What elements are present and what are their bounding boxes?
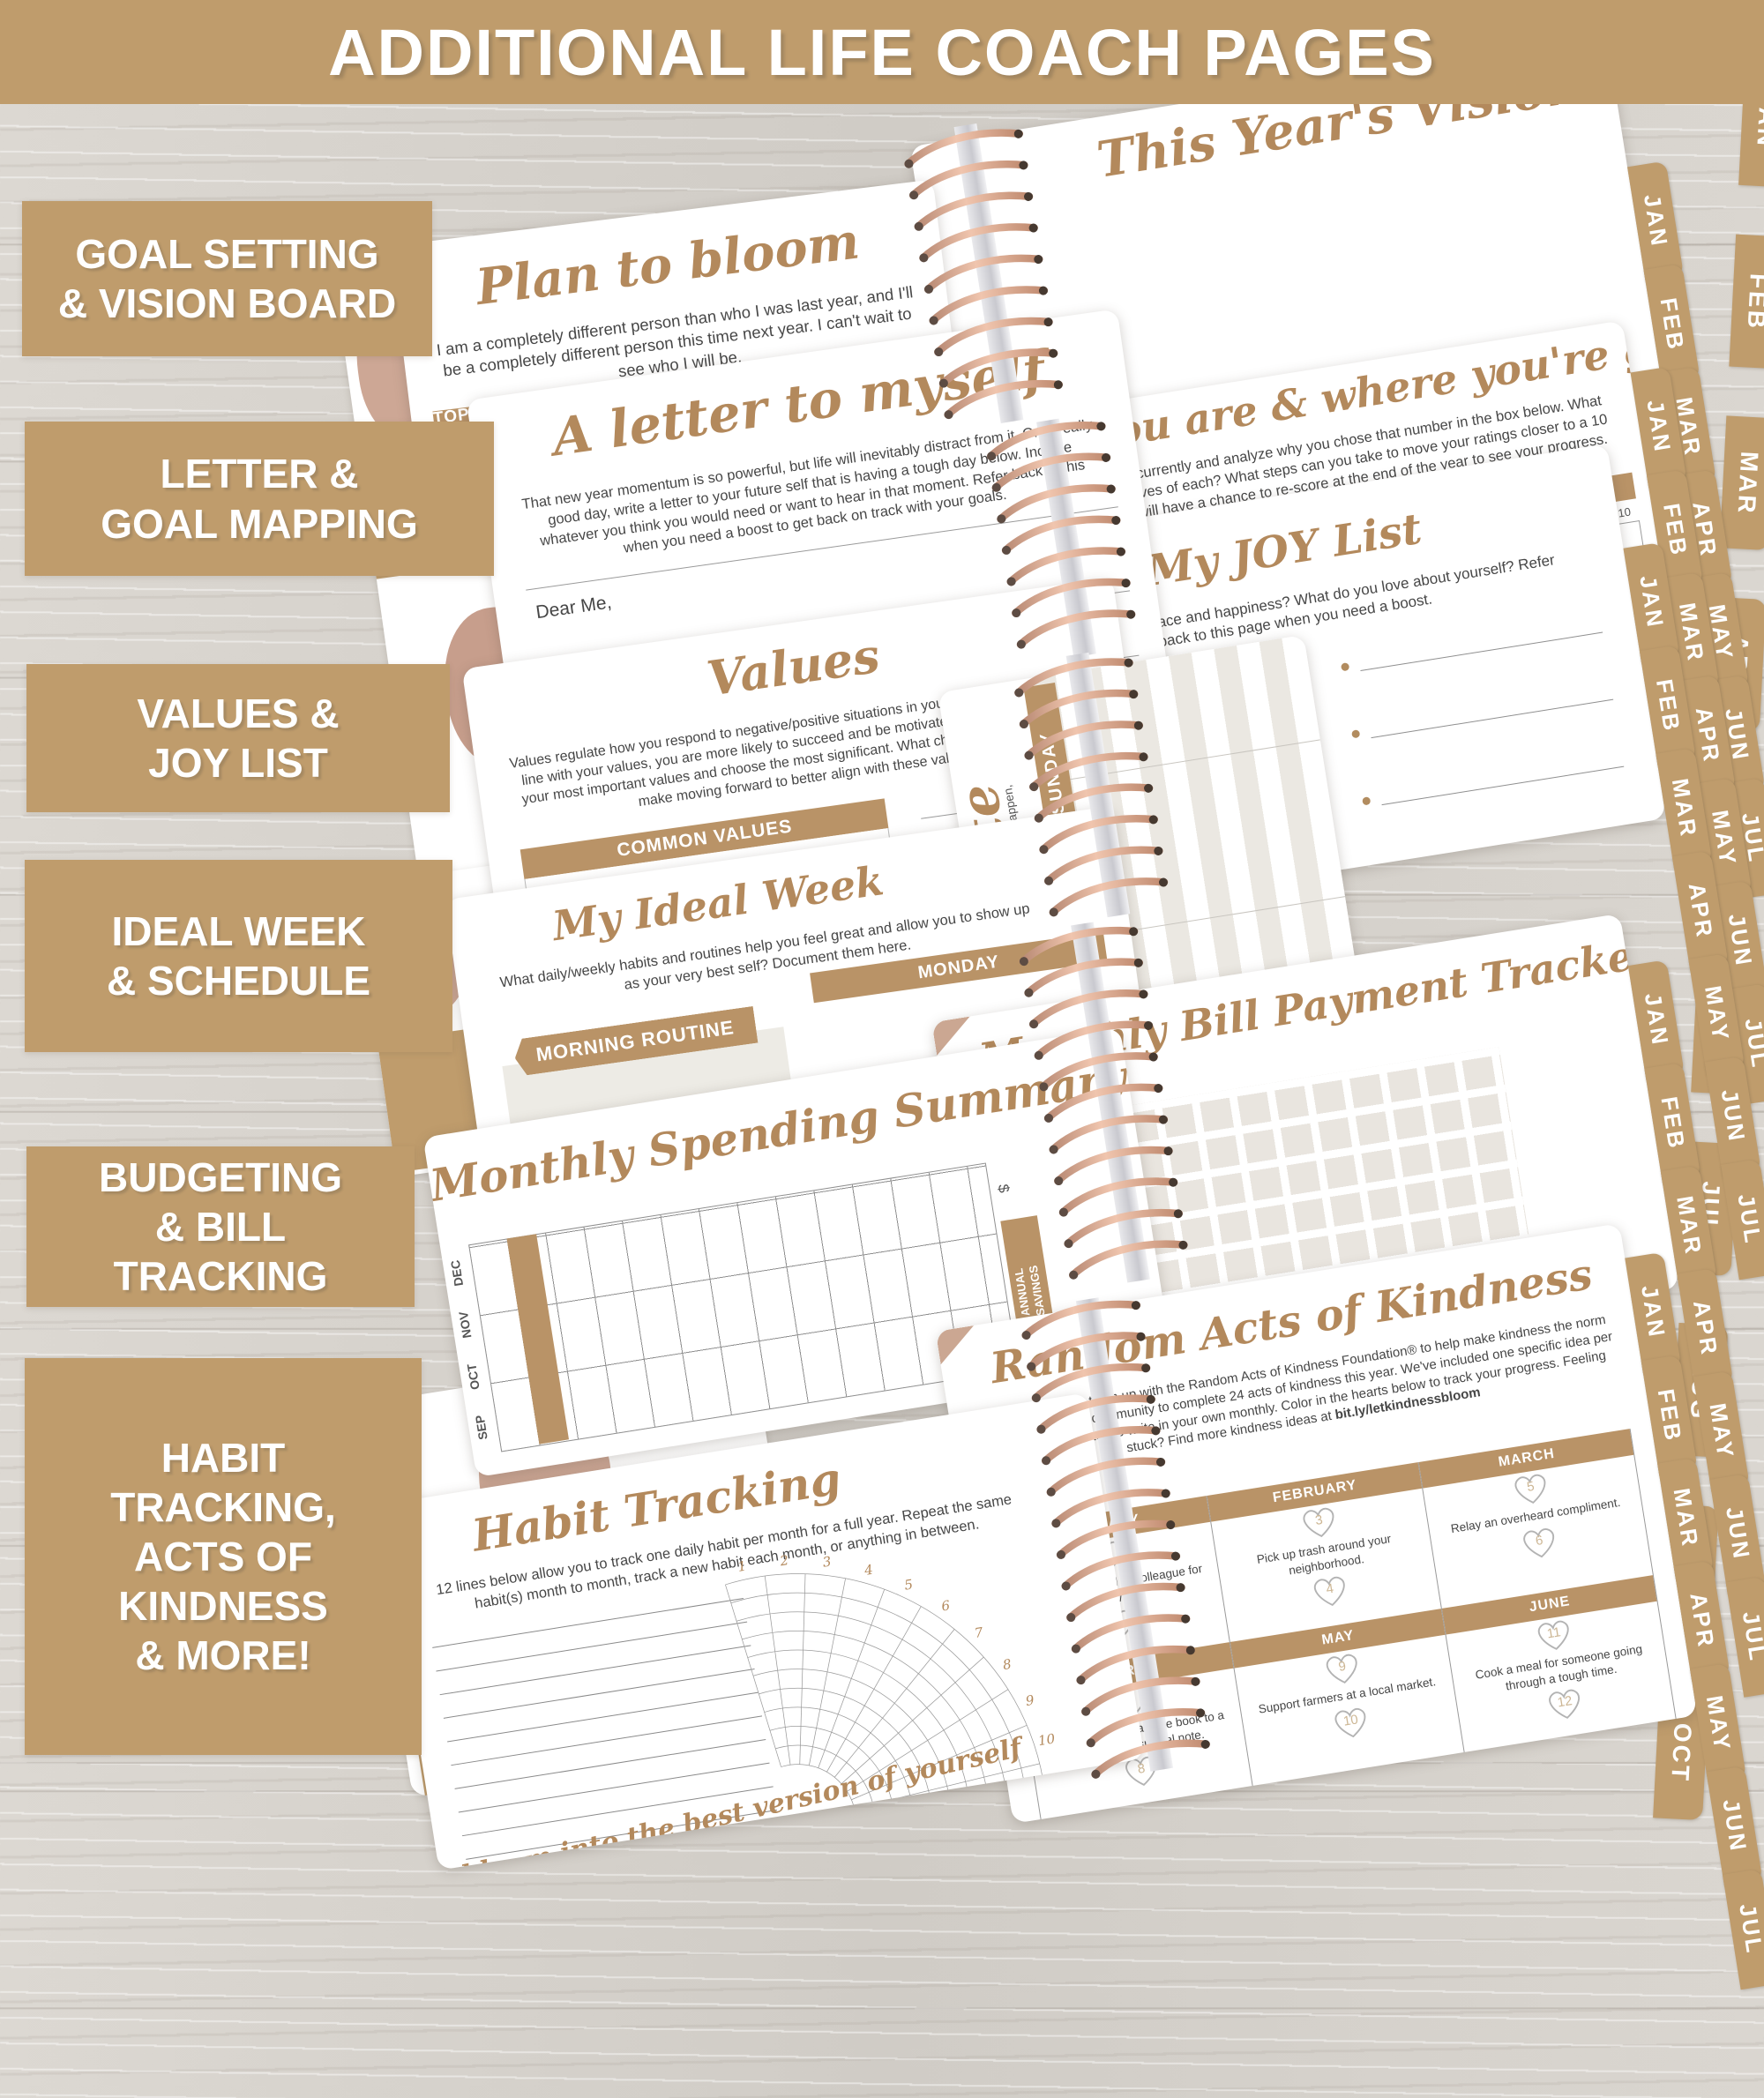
write-line	[1377, 740, 1624, 805]
svg-text:6: 6	[940, 1597, 952, 1614]
label-goal-setting: GOAL SETTING & VISION BOARD	[22, 201, 432, 356]
svg-text:5: 5	[903, 1576, 914, 1593]
svg-text:4: 4	[863, 1562, 874, 1579]
scale-number: 10	[1617, 505, 1632, 520]
heart-icon: 12	[1543, 1684, 1588, 1725]
label-ideal-week-schedule: IDEAL WEEK & SCHEDULE	[25, 860, 452, 1052]
heart-icon: 4	[1308, 1571, 1354, 1612]
morning-routine-ribbon: MORNING ROUTINE	[512, 1006, 759, 1077]
svg-text:2: 2	[778, 1552, 789, 1569]
svg-text:9: 9	[1338, 1659, 1348, 1675]
write-line	[1366, 673, 1613, 738]
grid-month-label: SEP	[473, 1415, 490, 1441]
month-tab: JUN	[1709, 1474, 1764, 1594]
bullet-dot	[1351, 729, 1360, 738]
kindness-month-cell: JUNE11Cook a meal for someone going thro…	[1442, 1575, 1677, 1755]
banner-title: ADDITIONAL LIFE COACH PAGES	[328, 15, 1436, 90]
heart-icon: 9	[1320, 1648, 1366, 1690]
joy-column	[1338, 606, 1625, 809]
heart-icon: 3	[1297, 1502, 1342, 1543]
svg-text:9: 9	[1024, 1692, 1035, 1709]
joy-list-item	[1359, 740, 1625, 808]
svg-text:6: 6	[1535, 1533, 1544, 1549]
salutation: Dear Me,	[534, 592, 613, 623]
heart-icon: 5	[1508, 1468, 1554, 1510]
svg-text:10: 10	[1342, 1712, 1359, 1728]
joy-list-item	[1349, 673, 1614, 741]
currency-symbol: $	[994, 1183, 1013, 1194]
title-banner: ADDITIONAL LIFE COACH PAGES	[0, 0, 1764, 104]
svg-text:10: 10	[1037, 1730, 1057, 1749]
bullet-dot	[1362, 796, 1371, 805]
label-habit-kindness-more: HABIT TRACKING, ACTS OF KINDNESS & MORE!	[25, 1358, 422, 1755]
grid-month-label: DEC	[448, 1259, 466, 1288]
svg-text:7: 7	[974, 1624, 985, 1641]
label-values-joy-list: VALUES & JOY LIST	[26, 664, 450, 812]
heart-icon: 11	[1532, 1615, 1578, 1656]
svg-text:12: 12	[1557, 1693, 1573, 1710]
heart-icon: 10	[1328, 1702, 1374, 1743]
svg-text:11: 11	[1546, 1624, 1562, 1641]
svg-text:8: 8	[1002, 1656, 1013, 1673]
kindness-month-cell: MAY9Support farmers at a local market.10	[1230, 1609, 1465, 1788]
svg-text:3: 3	[1314, 1512, 1324, 1528]
month-tab: FEB	[1729, 235, 1764, 370]
product-image: { "banner": {"title": "ADDITIONAL LIFE C…	[0, 0, 1764, 1764]
month-tab: JUL	[1723, 1869, 1764, 1990]
label-letter-goal-mapping: LETTER & GOAL MAPPING	[25, 422, 494, 576]
month-tab: JUN	[1707, 1766, 1763, 1886]
month-tab: JUL	[1726, 1577, 1764, 1698]
svg-text:3: 3	[821, 1553, 832, 1570]
svg-text:1: 1	[736, 1558, 747, 1575]
grid-month-label: OCT	[464, 1363, 482, 1391]
label-budgeting-bill-tracking: BUDGETING & BILL TRACKING	[26, 1146, 415, 1307]
page-corner-decoration	[931, 1017, 975, 1056]
bullet-dot	[1341, 662, 1349, 671]
month-tab: MAR	[1720, 415, 1764, 550]
grid-month-label: NOV	[456, 1310, 475, 1339]
heart-icon: 6	[1517, 1522, 1563, 1564]
svg-text:4: 4	[1326, 1581, 1335, 1597]
svg-text:5: 5	[1526, 1479, 1536, 1495]
